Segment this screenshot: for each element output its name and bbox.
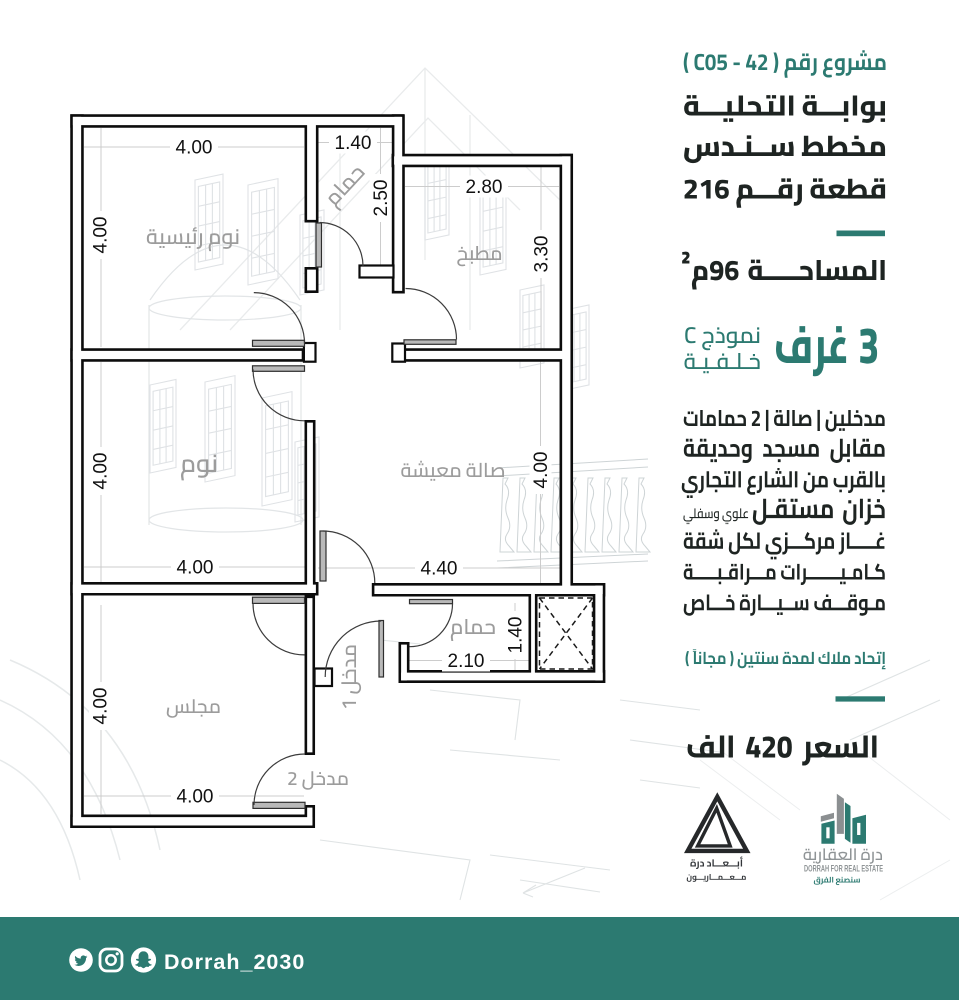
svg-text:4.00: 4.00 (176, 138, 213, 159)
svg-text:Dorrah_2030: Dorrah_2030 (164, 950, 305, 974)
svg-text:2.50: 2.50 (371, 180, 392, 217)
svg-text:4.00: 4.00 (177, 558, 214, 579)
svg-text:DORRAH FOR REAL ESTATE: DORRAH FOR REAL ESTATE (804, 864, 883, 875)
svg-text:4.00: 4.00 (177, 787, 214, 808)
svg-text:4.00: 4.00 (91, 453, 112, 490)
svg-text:2.80: 2.80 (466, 177, 503, 198)
svg-text:3.30: 3.30 (532, 236, 553, 273)
svg-text:1.40: 1.40 (506, 617, 527, 654)
svg-text:4.00: 4.00 (531, 452, 552, 489)
svg-text:4.00: 4.00 (91, 688, 112, 725)
svg-text:4.40: 4.40 (421, 559, 458, 580)
svg-text:4.00: 4.00 (91, 217, 112, 254)
svg-text:2.10: 2.10 (448, 651, 485, 672)
svg-text:1.40: 1.40 (335, 133, 372, 154)
